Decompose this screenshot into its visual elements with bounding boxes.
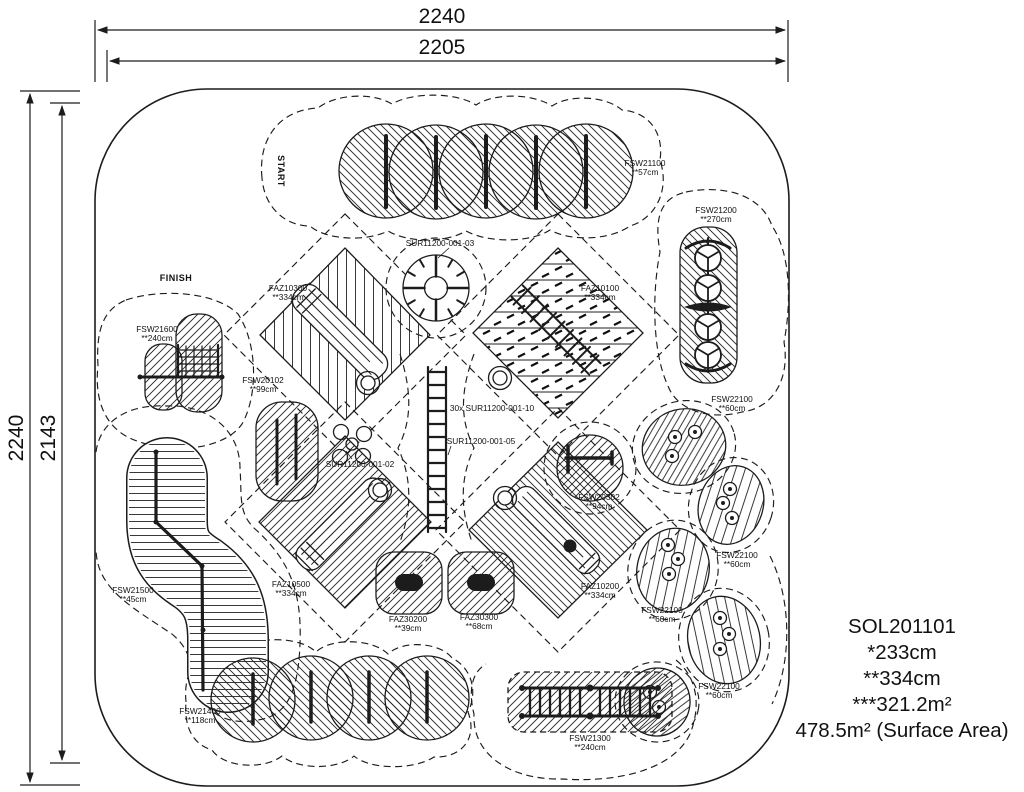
safety-zone-right-arc [770,556,787,704]
equipment-label: SUR11200-001-05 [447,436,516,446]
equipment-label: FSW21200 **270cm [695,205,737,224]
equipment-faz30300-rocker [448,552,514,614]
summary-block: SOL201101 *233cm **334cm ***321.2m² 478.… [795,615,1008,742]
svg-text:**60cm: **60cm [719,403,746,413]
equipment-label: FSW21600 **240cm [136,324,178,343]
svg-text:**60cm: **60cm [706,690,733,700]
safety-funnel-right [463,354,474,542]
summary-line: **334cm [863,667,941,690]
svg-text:**240cm: **240cm [141,333,172,343]
svg-text:**240cm: **240cm [574,742,605,752]
equipment-label: FAZ10300 **334cm [269,283,308,302]
summary-line: *233cm [867,641,937,664]
svg-text:**57cm: **57cm [632,167,659,177]
equipment-fsw21300-monkey-bars [508,672,672,732]
svg-text:**334cm: **334cm [272,292,303,302]
svg-text:**60cm: **60cm [724,559,751,569]
summary-line: ***321.2m² [852,693,951,716]
equipment-label: FSW22100 **60cm [641,605,683,624]
equipment-label: FSW21300 **240cm [569,733,611,752]
equipment-label: FAZ10100 **334cm [581,283,620,302]
equipment-label: FSW20102 **99cm [242,375,284,394]
equipment-label: FSW21100 **57cm [625,158,666,177]
summary-line: 478.5m² (Surface Area) [795,719,1008,742]
svg-text:**60cm: **60cm [649,614,676,624]
svg-text:**270cm: **270cm [700,214,731,224]
equipment-faz30200-rocker [376,552,442,614]
equipment-carousel [403,255,469,321]
svg-text:**118cm: **118cm [185,715,216,725]
equipment-label: SUR11200-001-02 [326,459,395,469]
equipment-label: SUR11200-001-03 [406,238,475,248]
playground-plan-drawing: 2240 2205 2240 2143 [0,0,1024,792]
product-code: SOL201101 [848,615,956,638]
equipment-label: FAZ10200 **334cm [581,581,620,600]
equipment-fsw21400-sweep-row [211,656,469,742]
svg-text:**39cm: **39cm [395,623,422,633]
equipment-label: FAZ30300 **68cm [460,612,499,631]
equipment-label: FSW22100 **60cm [716,550,758,569]
svg-text:**94cm: **94cm [586,501,613,511]
equipment-label: FAZ30200 **39cm [389,614,428,633]
start-marker: START [276,155,286,187]
dimension-value-left-outer: 2240 [5,415,28,462]
finish-marker: FINISH [160,273,193,283]
svg-text:**99cm: **99cm [250,384,277,394]
svg-text:**334cm: **334cm [584,292,615,302]
equipment-label: 30x SUR11200-001-10 [450,403,535,413]
dimension-value-top-outer: 2240 [419,5,466,28]
equipment-label: FSW22100 **60cm [698,681,740,700]
svg-text:SUR11200-001-02: SUR11200-001-02 [326,459,395,469]
svg-text:**334cm: **334cm [275,588,306,598]
svg-text:**68cm: **68cm [466,621,493,631]
equipment-fsw21100-sweep-row [339,124,633,219]
plan-canvas: 2240 2205 2240 2143 [0,0,1024,792]
dimension-value-left-inner: 2143 [37,415,60,462]
svg-text:**45cm: **45cm [120,594,147,604]
dimension-value-top-inner: 2205 [419,36,466,59]
equipment-fsw21200-ring-climber [680,227,737,383]
equipment-fsw21500-balance-snake [154,450,229,691]
svg-text:30x SUR11200-001-10: 30x SUR11200-001-10 [450,403,535,413]
equipment-label: FSW21400 **118cm [179,706,221,725]
svg-text:SUR11200-001-03: SUR11200-001-03 [406,238,475,248]
svg-text:**334cm: **334cm [584,590,615,600]
equipment-label: FAZ10500 **334cm [272,579,311,598]
equipment-ladder [428,367,446,532]
equipment-label: FSW21500 **45cm [112,585,154,604]
svg-text:SUR11200-001-05: SUR11200-001-05 [447,436,516,446]
